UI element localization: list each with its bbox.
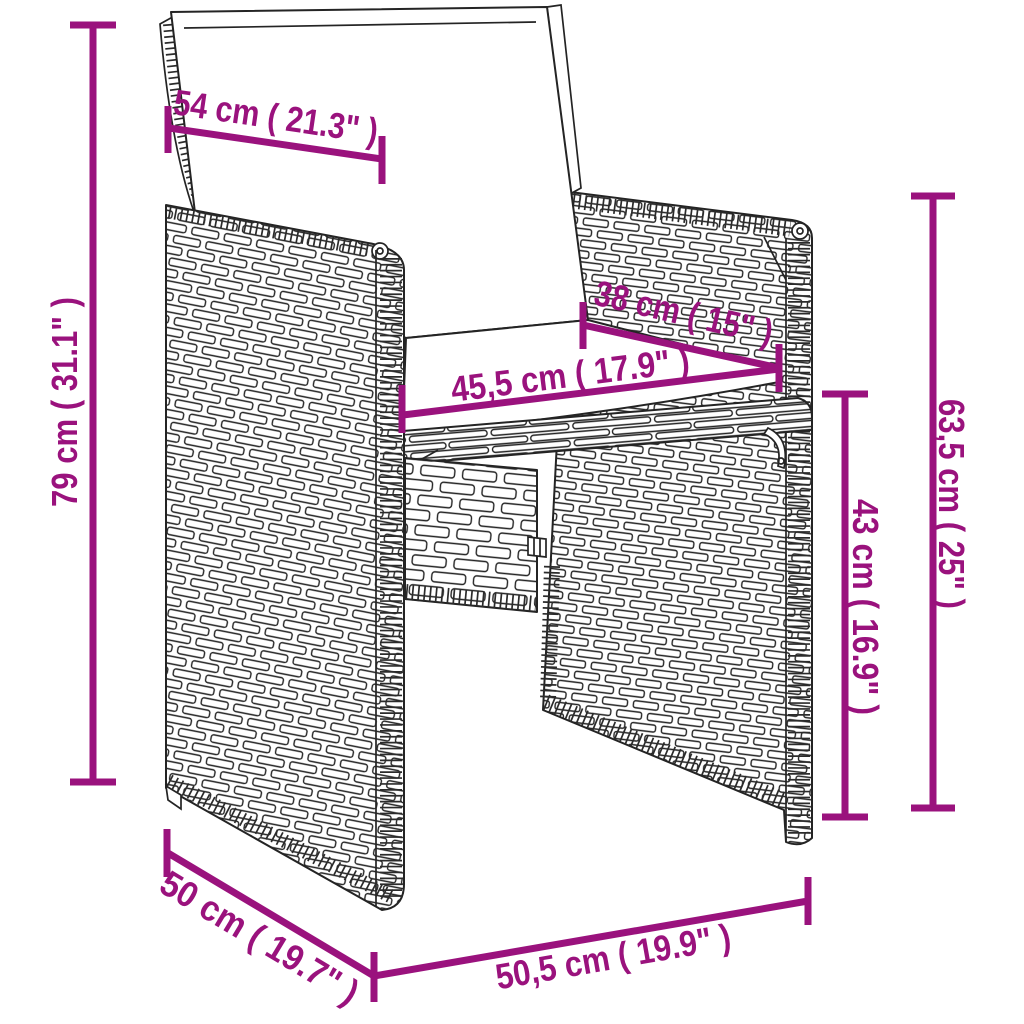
dimension-label: 50 cm ( 19.7" ) [153,862,366,1013]
left-side-panel [166,205,404,910]
dimension-diagram: 54 cm ( 21.3" ) 79 cm ( 31.1" ) 38 cm ( … [0,0,1024,1024]
left-panel-corner-curl-inner [377,248,383,254]
front-apron-panel [405,458,546,612]
dimension-label: 79 cm ( 31.1" ) [44,297,85,507]
dimension-label: 50,5 cm ( 19.9" ) [492,916,734,998]
apron-clip [528,537,546,557]
dimension-label: 63,5 cm ( 25" ) [931,399,972,609]
dimension-label: 43 cm ( 16.9" ) [845,499,886,715]
diagram-canvas: 54 cm ( 21.3" ) 79 cm ( 31.1" ) 38 cm ( … [0,0,1024,1024]
dimension-total-height: 79 cm ( 31.1" ) [44,25,116,782]
dimension-base-front-width: 50,5 cm ( 19.9" ) [374,877,808,1002]
dimension-seat-height: 43 cm ( 16.9" ) [822,394,886,817]
dimension-armrest-panel-height: 63,5 cm ( 25" ) [911,196,972,808]
right-panel-corner-curl-inner [797,228,803,234]
